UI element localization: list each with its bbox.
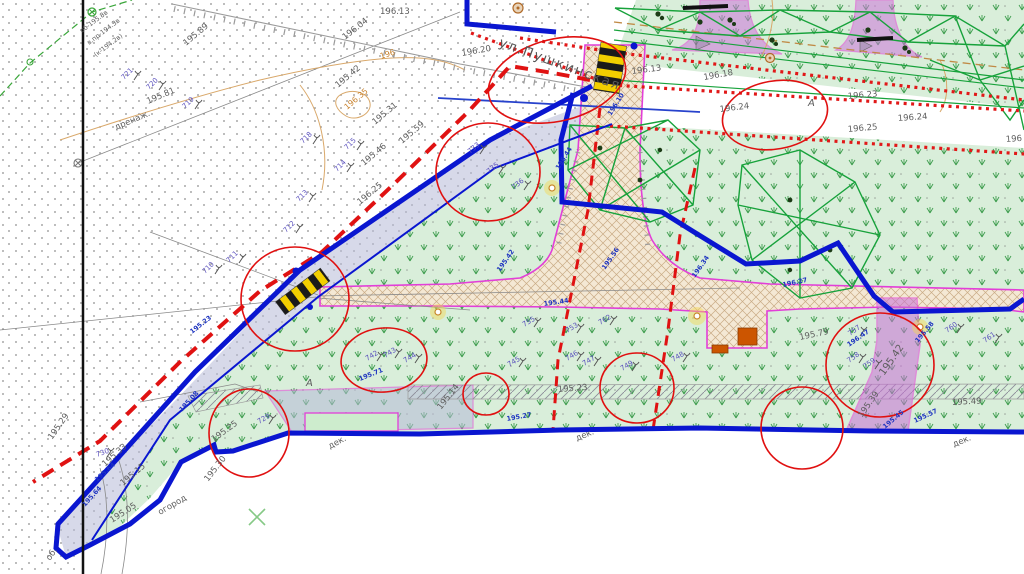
elevation-label: 195.49 bbox=[952, 396, 982, 408]
elevation-label: 195.23 bbox=[558, 383, 588, 395]
elevation-label: А bbox=[305, 378, 313, 389]
map-canvas: 7217207197187157147137127117107337357367… bbox=[0, 0, 1024, 574]
elevation-label: А bbox=[807, 98, 815, 109]
elevation-label: 196.24 bbox=[898, 112, 928, 124]
elevation-label: 196 bbox=[1006, 134, 1023, 145]
elevation-label: 196.13 bbox=[380, 7, 410, 17]
